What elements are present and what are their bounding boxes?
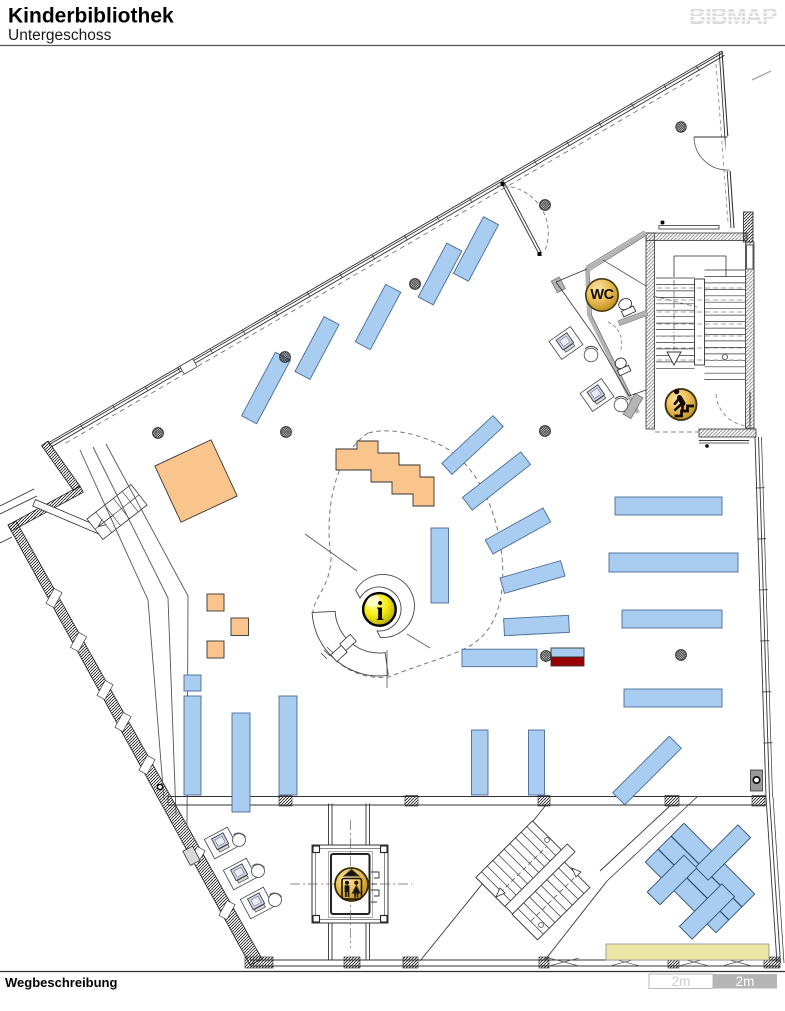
svg-text:WC: WC — [590, 287, 614, 303]
svg-text:2m: 2m — [736, 974, 755, 989]
svg-text:Untergeschoss: Untergeschoss — [8, 27, 112, 44]
svg-text:2m: 2m — [672, 974, 691, 989]
svg-text:Kinderbibliothek: Kinderbibliothek — [8, 5, 174, 28]
svg-text:Wegbeschreibung: Wegbeschreibung — [5, 975, 118, 990]
svg-text:i: i — [376, 596, 384, 626]
